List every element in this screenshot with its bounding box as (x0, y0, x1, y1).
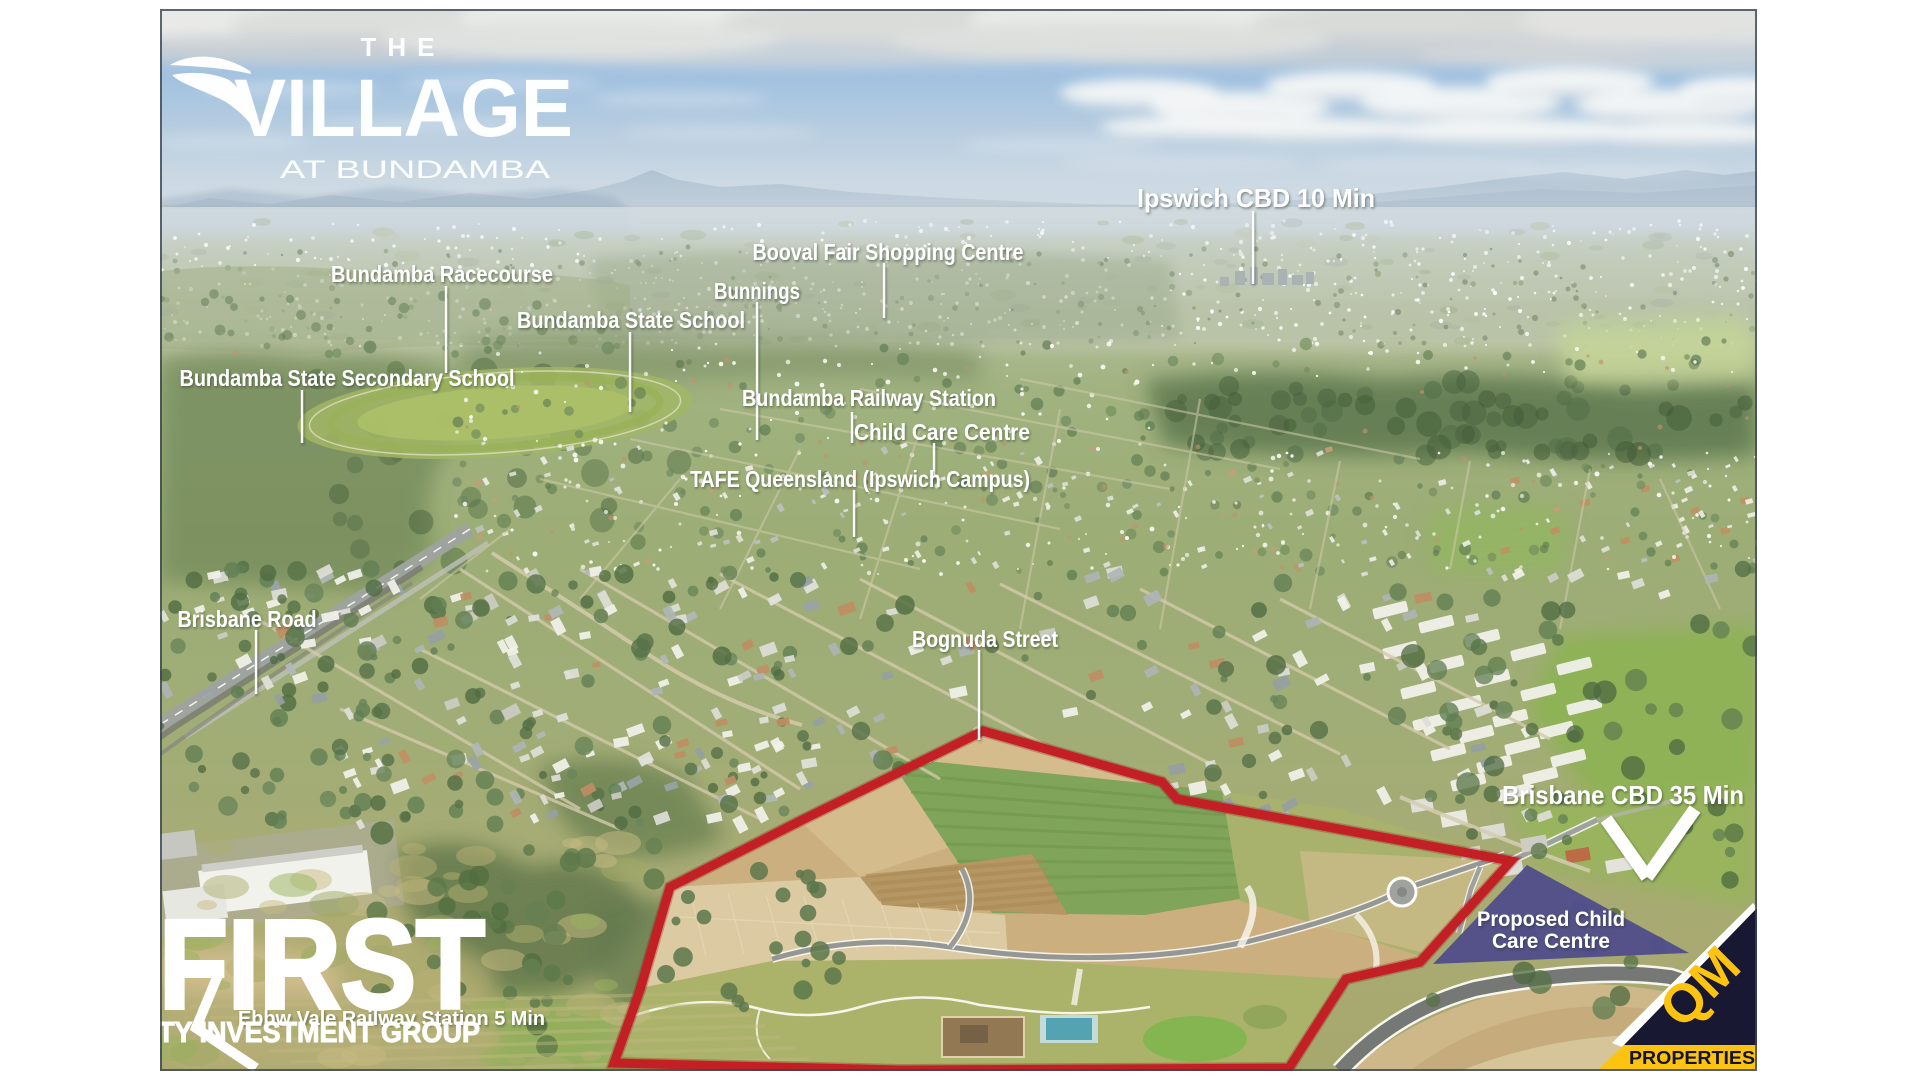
svg-text:Bundamba Railway Station: Bundamba Railway Station (742, 385, 996, 411)
svg-text:Ipswich CBD 10 Min: Ipswich CBD 10 Min (1137, 183, 1375, 213)
svg-text:Care Centre: Care Centre (1492, 930, 1610, 953)
svg-text:Booval Fair Shopping Centre: Booval Fair Shopping Centre (753, 239, 1024, 265)
svg-text:TY INVESTMENT GROUP: TY INVESTMENT GROUP (160, 1017, 480, 1049)
svg-text:Bunnings: Bunnings (714, 278, 800, 304)
svg-text:Child Care Centre: Child Care Centre (854, 419, 1030, 445)
svg-text:Bundamba State School: Bundamba State School (517, 307, 745, 333)
svg-text:Proposed Child: Proposed Child (1477, 908, 1625, 931)
svg-text:TAFE Queensland (Ipswich Campu: TAFE Queensland (Ipswich Campus) (690, 466, 1030, 492)
svg-text:Brisbane CBD 35 Min: Brisbane CBD 35 Min (1502, 780, 1744, 810)
svg-text:Brisbane Road: Brisbane Road (178, 606, 317, 632)
svg-text:THE: THE (361, 32, 446, 62)
svg-text:Bognuda Street: Bognuda Street (912, 626, 1058, 652)
svg-text:AT BUNDAMBA: AT BUNDAMBA (280, 156, 550, 184)
svg-text:Bundamba Racecourse: Bundamba Racecourse (331, 261, 553, 287)
svg-text:Bundamba State Secondary Schoo: Bundamba State Secondary School (180, 365, 515, 391)
svg-text:VILLAGE: VILLAGE (234, 63, 573, 154)
svg-text:PROPERTIES: PROPERTIES (1629, 1047, 1755, 1068)
svg-text:FIRST: FIRST (160, 894, 485, 1035)
